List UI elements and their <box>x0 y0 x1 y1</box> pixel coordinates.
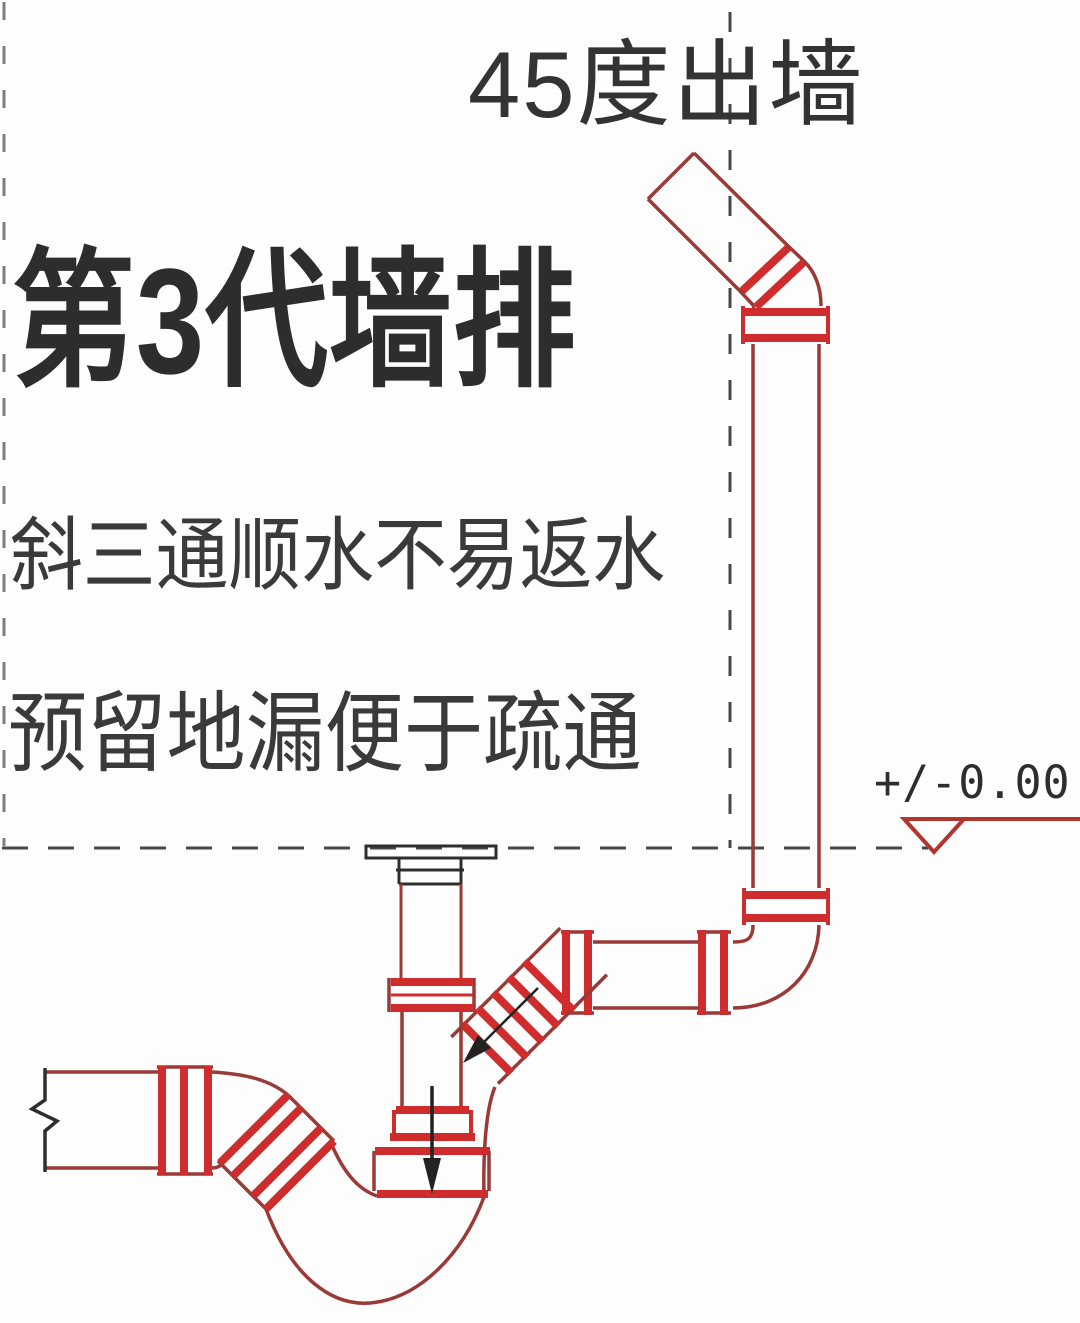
banner-45deg-label: 45度出墙 <box>468 38 865 132</box>
note-floor-drain: 预留地漏便于疏通 <box>8 690 642 778</box>
note-diagonal-tee: 斜三通顺水不易返水 <box>10 516 665 596</box>
diagram-page: 45度出墙 第3代墙排 斜三通顺水不易返水 预留地漏便于疏通 +/-0.00 <box>0 0 1080 1323</box>
headline-gen3-wall-drain: 第3代墙排 <box>12 246 577 396</box>
diagram-canvas <box>0 0 1080 1323</box>
wall-exit-pipe-45 <box>648 153 821 310</box>
drain-stack-hub <box>389 978 474 1012</box>
riser-top-socket <box>743 306 828 344</box>
riser-bottom-elbow <box>697 888 828 1015</box>
elevation-benchmark-icon <box>904 819 1080 852</box>
elevation-label: +/-0.00 <box>874 760 1071 805</box>
pipe-break-icon <box>32 1068 57 1172</box>
riser-pipe <box>753 344 819 888</box>
floor-drain <box>366 846 496 978</box>
main-drain-pipe-left <box>45 1066 334 1209</box>
